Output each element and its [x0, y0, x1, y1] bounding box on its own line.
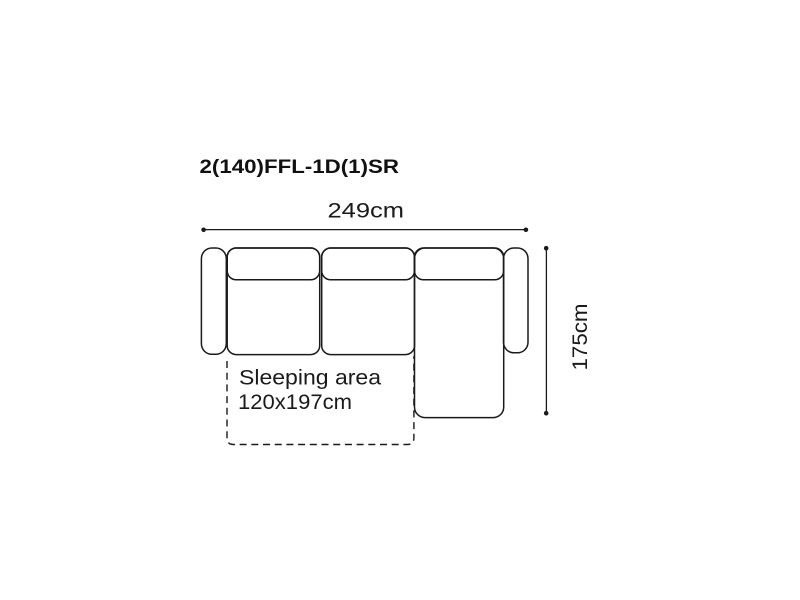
svg-text:Sleeping area: Sleeping area — [239, 367, 381, 390]
svg-text:120x197cm: 120x197cm — [238, 391, 352, 414]
svg-text:2(140)FFL-1D(1)SR: 2(140)FFL-1D(1)SR — [200, 156, 400, 178]
svg-text:175cm: 175cm — [569, 304, 592, 371]
svg-text:249cm: 249cm — [328, 200, 405, 223]
